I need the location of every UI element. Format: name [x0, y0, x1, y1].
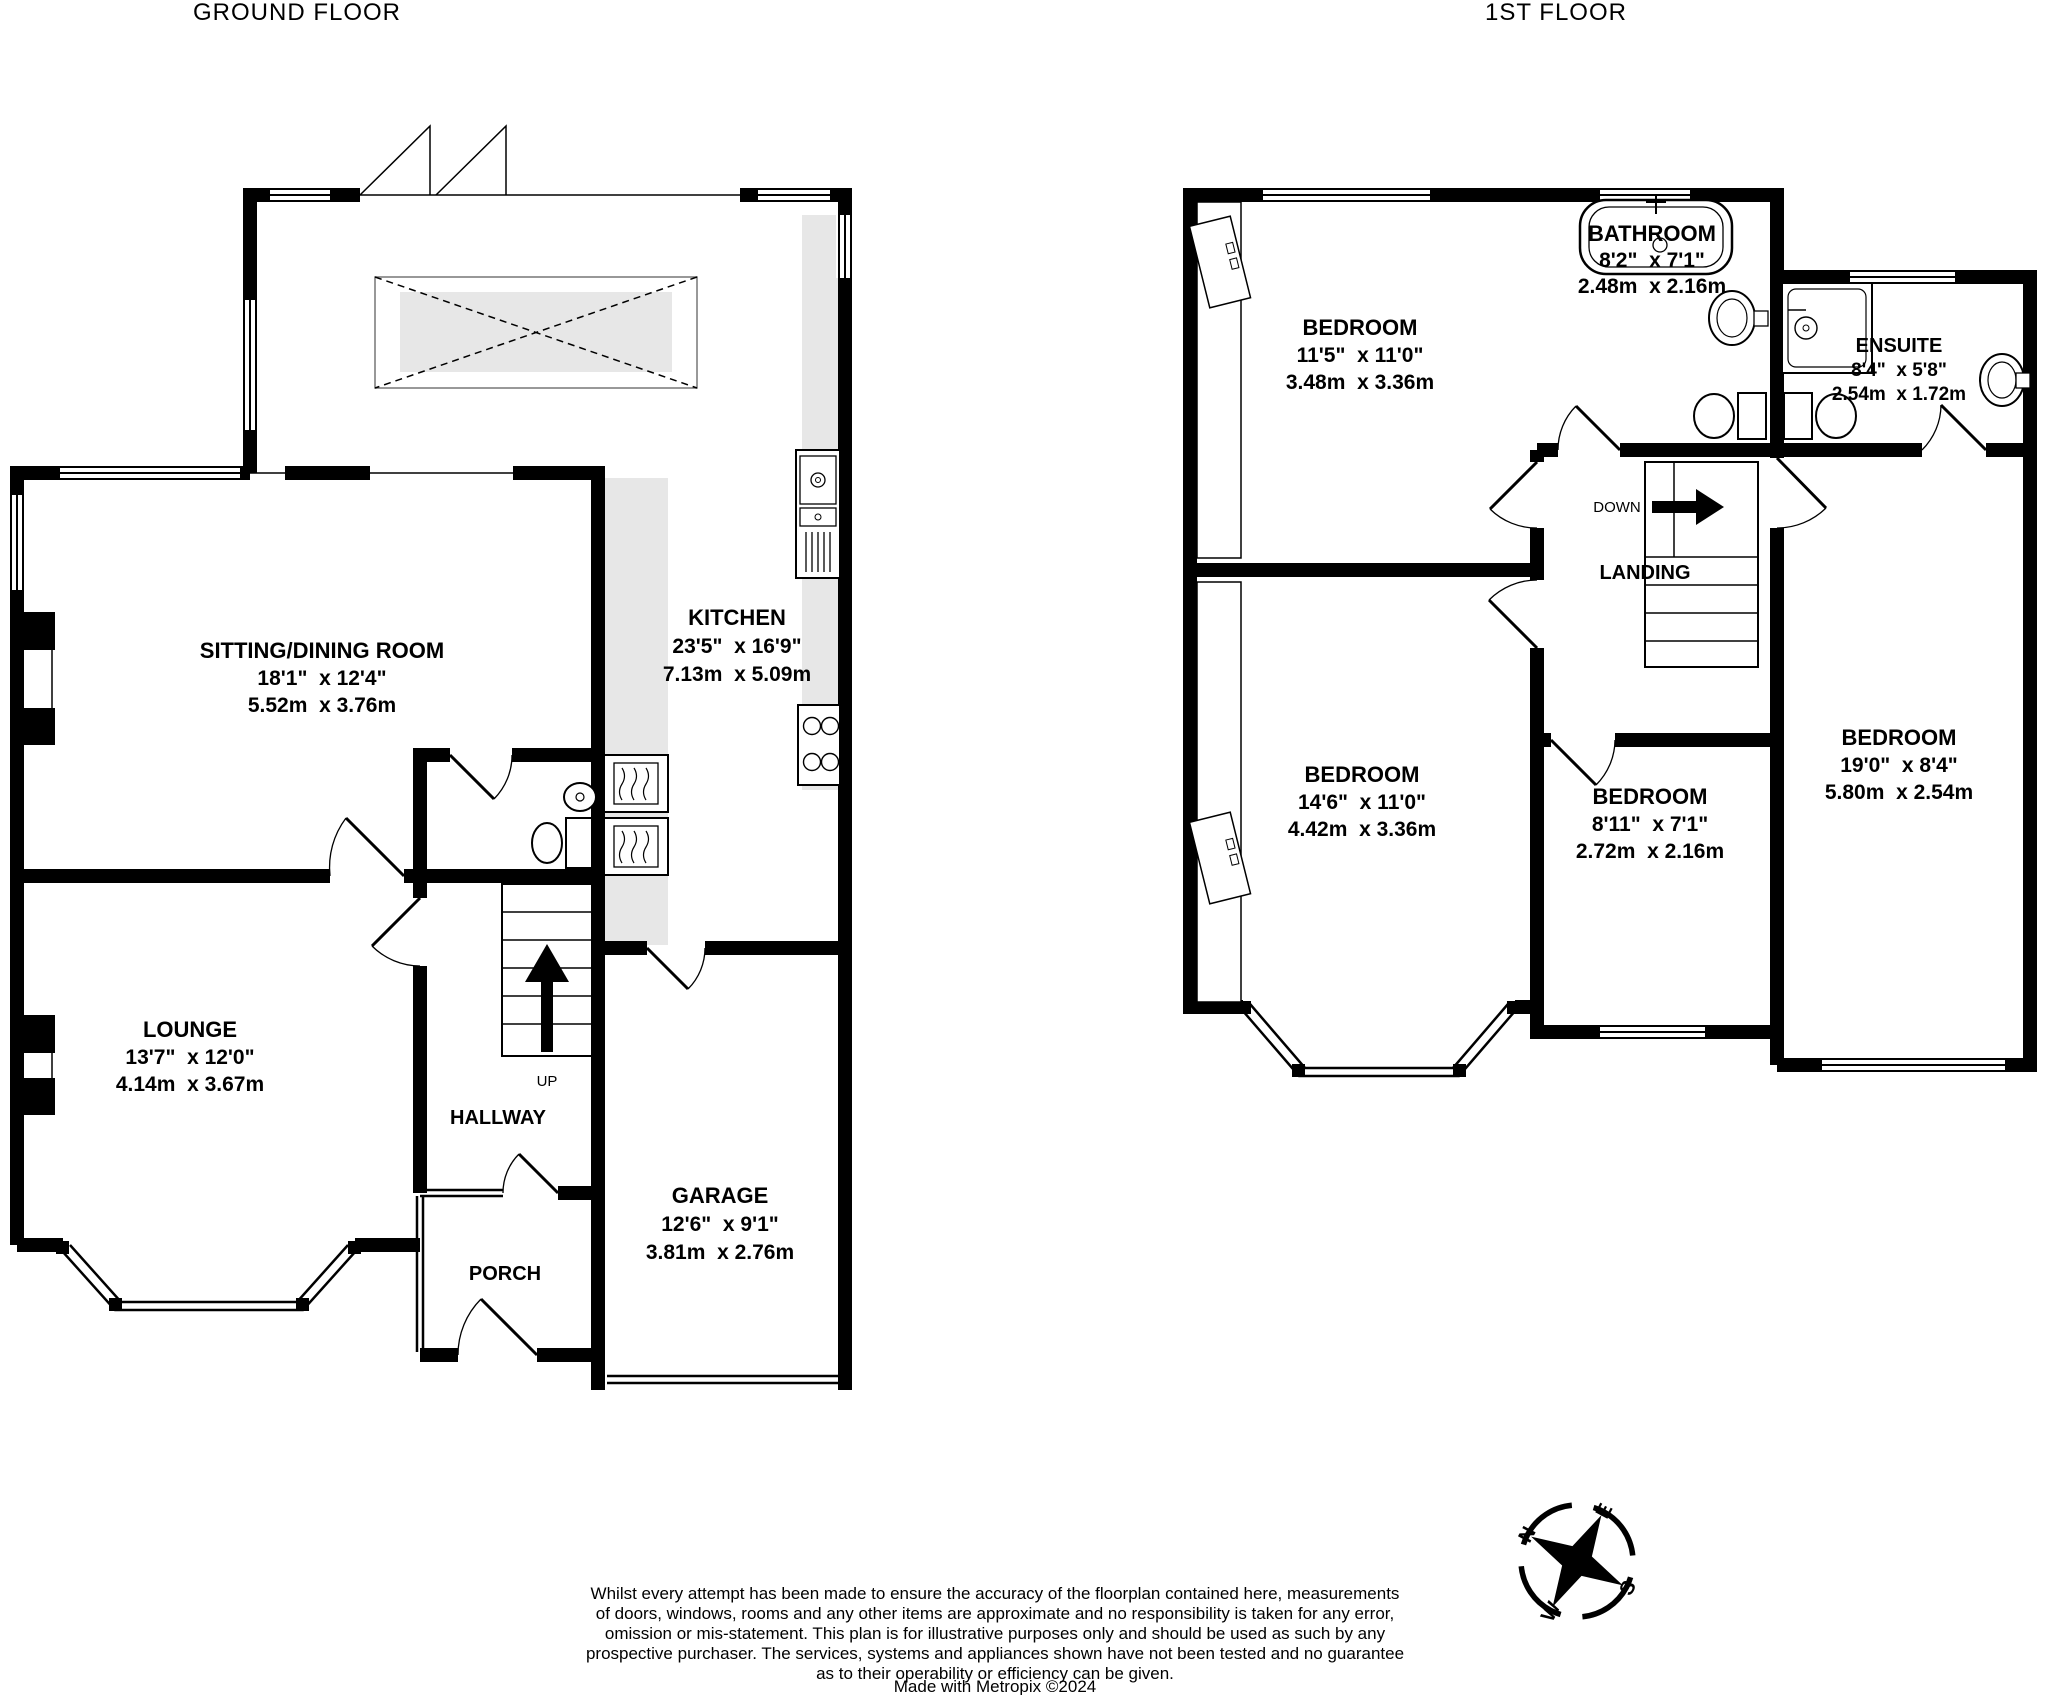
metropix-credit: Made with Metropix ©2024	[894, 1677, 1096, 1695]
wardrobe-icon	[1197, 582, 1241, 1002]
room-size-imperial: 11'5" x 11'0"	[1297, 344, 1424, 367]
room-size-metric: 2.48m x 2.16m	[1578, 275, 1726, 298]
toilet-icon	[1694, 394, 1734, 438]
room-label-kitchen: KITCHEN	[688, 605, 786, 630]
room-size-imperial: 23'5" x 16'9"	[672, 635, 801, 658]
toilet-icon	[532, 823, 562, 863]
room-size-imperial: 8'11" x 7'1"	[1592, 813, 1708, 836]
toilet-cistern-icon	[1738, 393, 1766, 439]
room-size-imperial: 19'0" x 8'4"	[1840, 754, 1957, 777]
first-floor-title: 1ST FLOOR	[1485, 0, 1627, 26]
room-size-metric: 4.42m x 3.36m	[1288, 818, 1436, 841]
room-label-hallway: HALLWAY	[450, 1107, 547, 1129]
room-label-landing: LANDING	[1599, 562, 1690, 584]
room-size-metric: 3.48m x 3.36m	[1286, 371, 1434, 394]
room-size-metric: 3.81m x 2.76m	[646, 1241, 794, 1264]
room-size-metric: 5.80m x 2.54m	[1825, 781, 1973, 804]
wc-fixtures	[532, 783, 596, 868]
room-label-bathroom: BATHROOM	[1588, 221, 1716, 246]
stairs-up	[502, 884, 592, 1056]
wardrobes	[1189, 202, 1250, 1002]
room-label-ensuite: ENSUITE	[1856, 335, 1943, 357]
room-size-metric: 4.14m x 3.67m	[116, 1073, 264, 1096]
room-size-imperial: 13'7" x 12'0"	[125, 1046, 254, 1069]
skylight	[375, 277, 697, 388]
room-label-lounge: LOUNGE	[143, 1017, 237, 1042]
appliance-icon	[604, 818, 668, 875]
room-label-bedroom-long: BEDROOM	[1842, 725, 1957, 750]
room-size-imperial: 8'4" x 5'8"	[1851, 360, 1947, 381]
appliance-icon	[604, 755, 668, 812]
disclaimer-line: prospective purchaser. The services, sys…	[586, 1644, 1404, 1663]
room-size-metric: 5.52m x 3.76m	[248, 694, 396, 717]
room-label-bedroom-front: BEDROOM	[1303, 315, 1418, 340]
room-label-bedroom-small: BEDROOM	[1593, 784, 1708, 809]
room-size-imperial: 8'2" x 7'1"	[1599, 249, 1705, 272]
stairs-up-label: UP	[537, 1073, 558, 1090]
room-label-porch: PORCH	[469, 1263, 541, 1285]
room-size-metric: 2.72m x 2.16m	[1576, 840, 1724, 863]
floorplan-page: { "ground_floor": { "title": "GROUND FLO…	[0, 0, 2048, 1695]
disclaimer-line: omission or mis-statement. This plan is …	[605, 1624, 1386, 1643]
toilet-cistern-icon	[566, 818, 592, 868]
stairs-down-label: DOWN	[1593, 499, 1641, 516]
floorplan-canvas: GROUND FLOOR 1ST FLOOR	[0, 0, 2048, 1695]
room-label-garage: GARAGE	[672, 1183, 769, 1208]
disclaimer-line: of doors, windows, rooms and any other i…	[596, 1604, 1394, 1623]
compass-star-icon	[1507, 1491, 1648, 1632]
room-size-imperial: 12'6" x 9'1"	[661, 1213, 778, 1236]
room-label-bedroom-rear: BEDROOM	[1305, 762, 1420, 787]
bay-window	[1238, 1001, 1520, 1077]
toilet-cistern-icon	[1784, 393, 1812, 439]
bay-window	[56, 1241, 361, 1311]
room-size-metric: 2.54m x 1.72m	[1832, 384, 1966, 405]
hob-icon	[798, 705, 840, 785]
room-size-imperial: 18'1" x 12'4"	[257, 667, 386, 690]
first-floor-plan: BEDROOM 11'5" x 11'0" 3.48m x 3.36m BATH…	[1189, 186, 2030, 1077]
compass-north: N	[1514, 1523, 1540, 1546]
disclaimer: Whilst every attempt has been made to en…	[586, 1584, 1404, 1695]
disclaimer-line: Whilst every attempt has been made to en…	[591, 1584, 1400, 1603]
ground-floor-title: GROUND FLOOR	[193, 0, 401, 26]
compass-rose: N E S W	[1487, 1473, 1668, 1652]
room-size-metric: 7.13m x 5.09m	[663, 663, 811, 686]
room-size-imperial: 14'6" x 11'0"	[1298, 791, 1426, 814]
ground-floor-plan: SITTING/DINING ROOM 18'1" x 12'4" 5.52m …	[8, 126, 854, 1390]
room-label-sitting-dining: SITTING/DINING ROOM	[200, 638, 444, 663]
